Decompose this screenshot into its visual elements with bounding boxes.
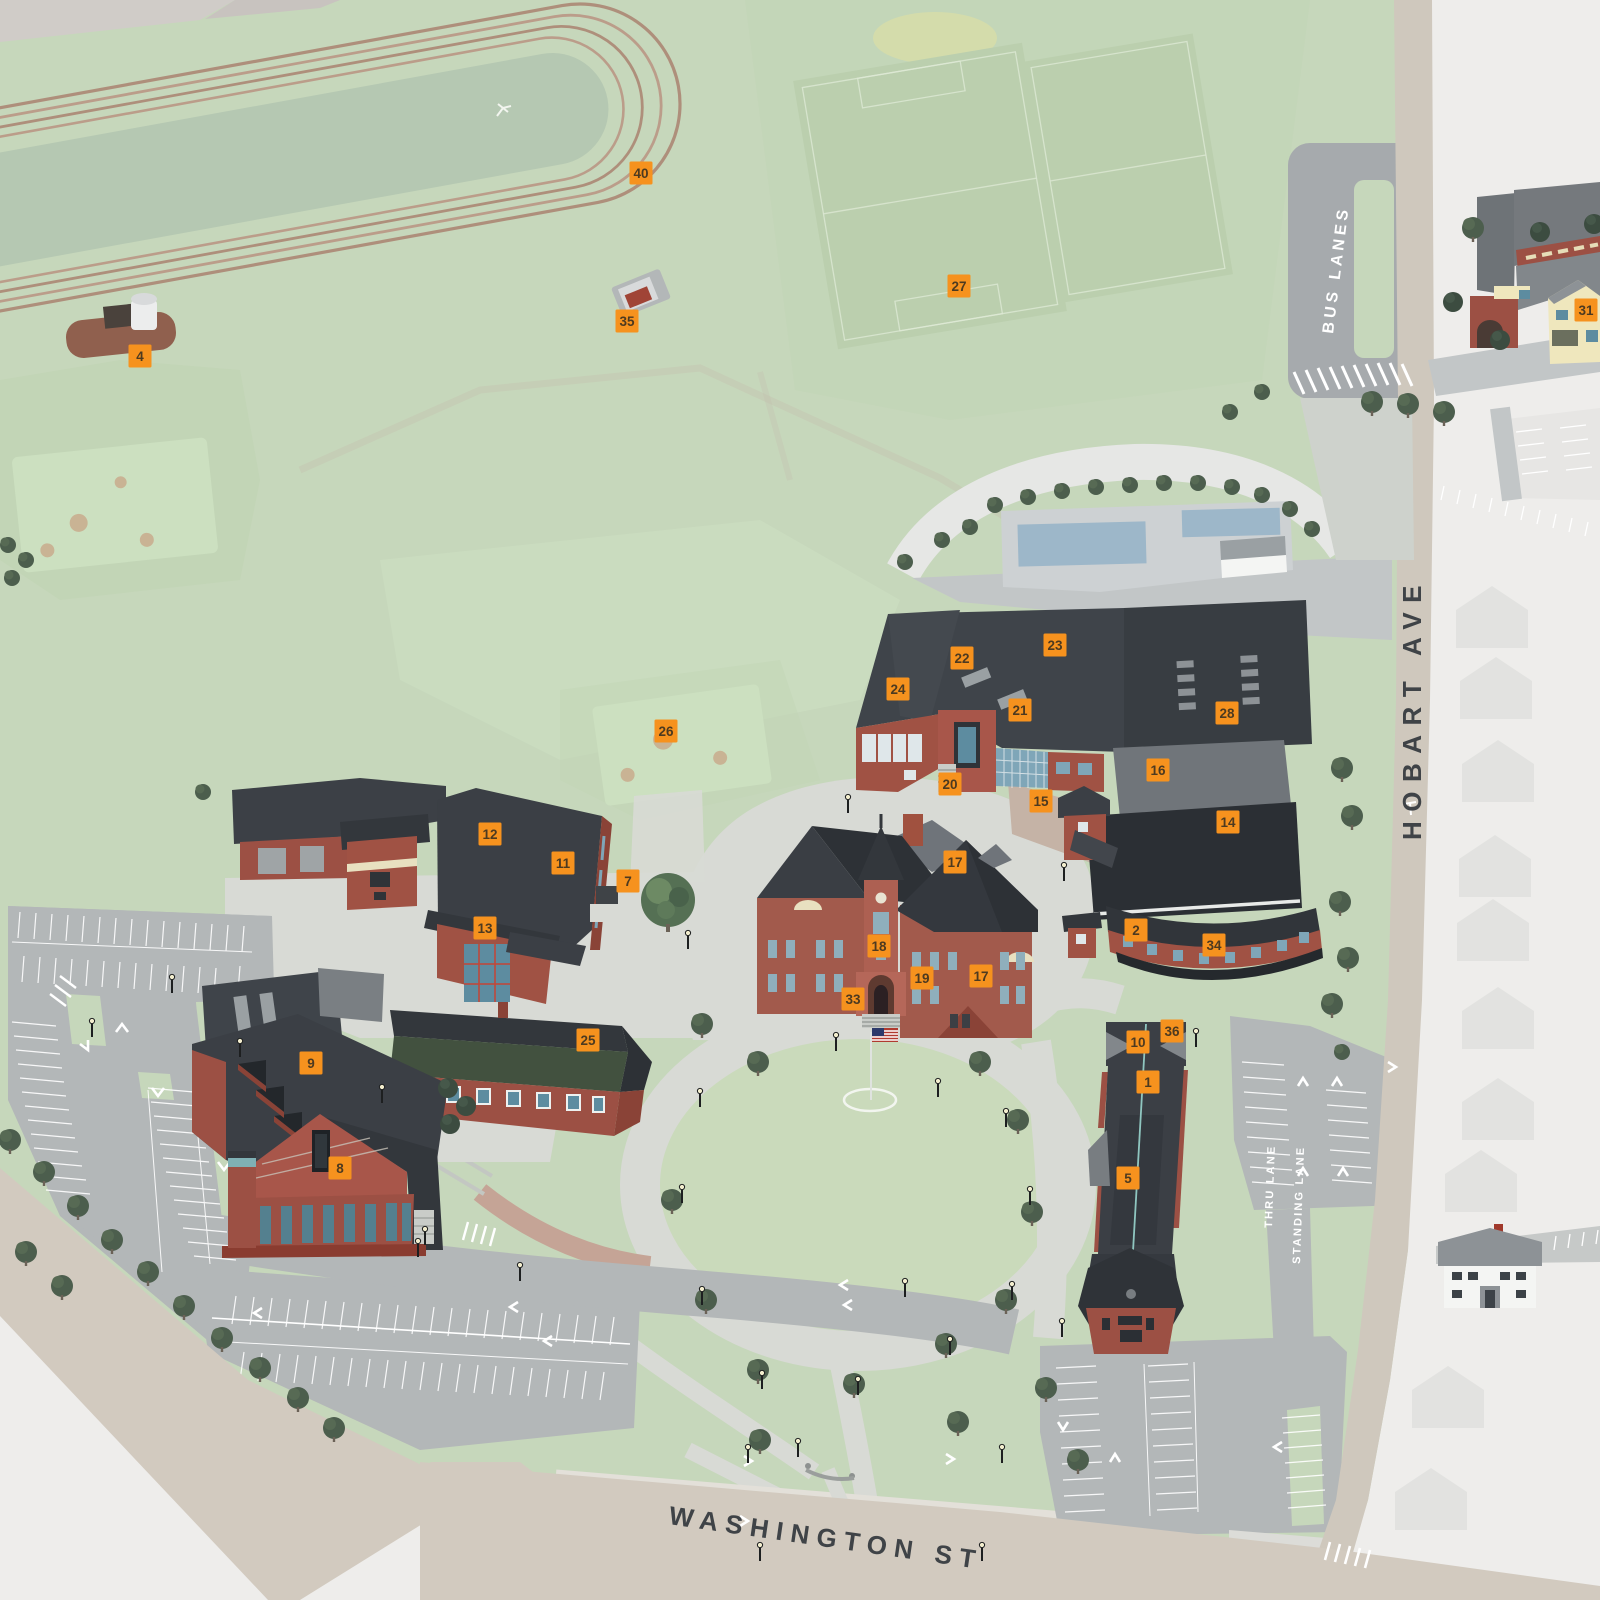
svg-text:HOBART AVE: HOBART AVE xyxy=(1397,576,1427,840)
svg-text:24: 24 xyxy=(890,682,906,697)
svg-text:17: 17 xyxy=(973,969,988,984)
svg-text:21: 21 xyxy=(1012,703,1028,718)
svg-text:10: 10 xyxy=(1130,1035,1145,1050)
svg-text:14: 14 xyxy=(1220,815,1236,830)
svg-text:4: 4 xyxy=(136,349,144,364)
svg-text:8: 8 xyxy=(336,1161,344,1176)
svg-text:40: 40 xyxy=(633,166,648,181)
svg-text:35: 35 xyxy=(619,314,635,329)
svg-text:17: 17 xyxy=(947,855,962,870)
svg-text:5: 5 xyxy=(1124,1171,1132,1186)
svg-text:2: 2 xyxy=(1132,923,1140,938)
svg-text:15: 15 xyxy=(1033,794,1049,809)
svg-text:27: 27 xyxy=(951,279,966,294)
svg-text:31: 31 xyxy=(1578,303,1594,318)
svg-text:16: 16 xyxy=(1150,763,1166,778)
svg-text:12: 12 xyxy=(482,827,497,842)
svg-text:23: 23 xyxy=(1047,638,1063,653)
svg-text:33: 33 xyxy=(845,992,861,1007)
svg-text:13: 13 xyxy=(477,921,493,936)
svg-text:22: 22 xyxy=(954,651,969,666)
svg-text:36: 36 xyxy=(1164,1024,1180,1039)
svg-text:20: 20 xyxy=(942,777,957,792)
svg-text:25: 25 xyxy=(580,1033,596,1048)
svg-text:34: 34 xyxy=(1206,938,1222,953)
svg-text:9: 9 xyxy=(307,1056,315,1071)
svg-text:7: 7 xyxy=(624,874,632,889)
svg-text:1: 1 xyxy=(1144,1075,1152,1090)
svg-text:26: 26 xyxy=(658,724,674,739)
svg-text:18: 18 xyxy=(871,939,887,954)
svg-text:11: 11 xyxy=(556,856,571,871)
svg-text:28: 28 xyxy=(1219,706,1235,721)
svg-text:19: 19 xyxy=(914,971,929,986)
